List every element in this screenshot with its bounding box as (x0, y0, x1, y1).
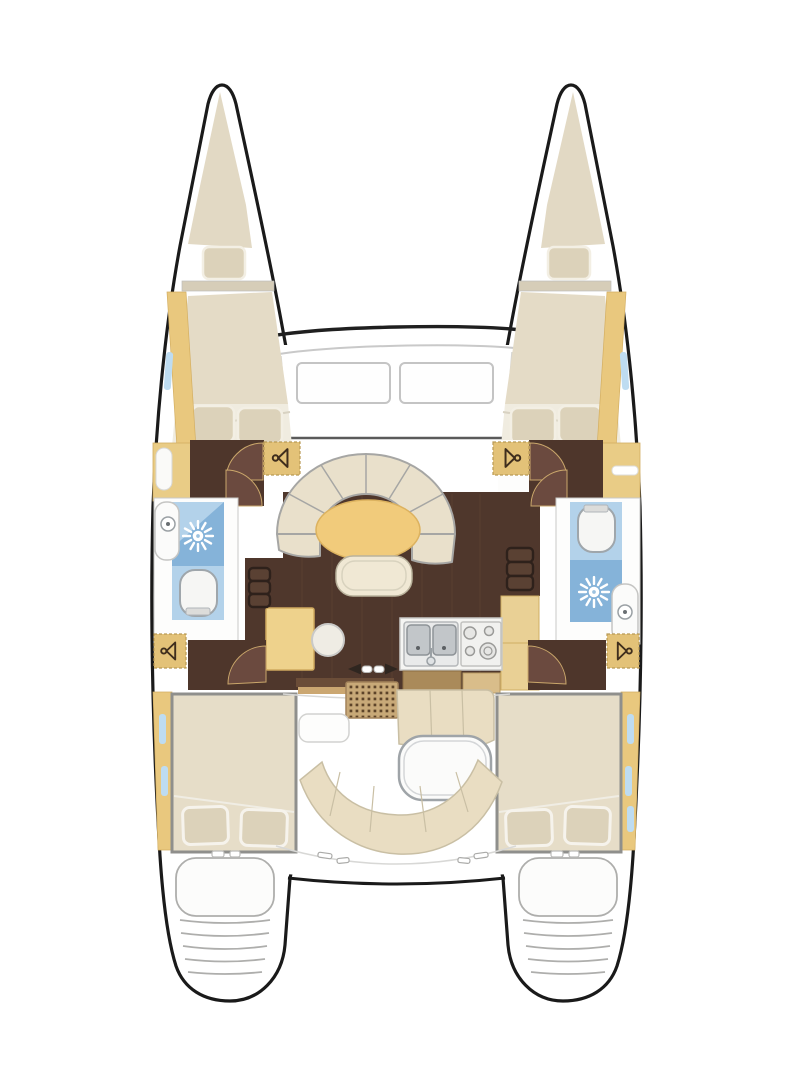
companionway-steps-starboard (507, 548, 533, 590)
wardrobe (154, 634, 186, 668)
floorplan-page (0, 0, 810, 1080)
front-window-starboard (400, 363, 493, 403)
hull-window (627, 714, 634, 744)
front-window-port (297, 363, 390, 403)
pillow (238, 408, 282, 444)
wardrobe (493, 442, 529, 475)
toilet-icon (578, 505, 615, 552)
hull-window (159, 714, 166, 744)
toilet-icon (180, 570, 217, 616)
chart-table (266, 608, 314, 670)
wardrobe (607, 634, 639, 668)
hull-window (161, 766, 168, 796)
companionway-steps-port (249, 568, 270, 607)
starboard-forward-cabin (501, 292, 629, 448)
port-aft-cabin (153, 692, 296, 852)
catamaran-floorplan (0, 0, 810, 1080)
nav-stool (312, 624, 344, 656)
pillow (511, 408, 555, 444)
hull-window (627, 806, 634, 832)
pillow (182, 806, 228, 845)
pillow (564, 806, 610, 845)
port-forward-cabin (164, 292, 292, 448)
pillow (505, 809, 552, 847)
pillow (559, 406, 601, 442)
starboard-aft-cabin (497, 692, 640, 852)
cockpit-grating (346, 682, 398, 718)
stove-burners-icon (461, 622, 501, 666)
ottoman (336, 556, 412, 596)
pillow (192, 406, 234, 442)
helm-seat (299, 714, 349, 742)
galley (400, 618, 502, 670)
pillow (548, 247, 590, 279)
saloon-table (316, 500, 420, 560)
hull-window (625, 766, 632, 796)
pillow (203, 247, 245, 279)
pillow (240, 809, 287, 847)
wardrobe (264, 442, 300, 475)
